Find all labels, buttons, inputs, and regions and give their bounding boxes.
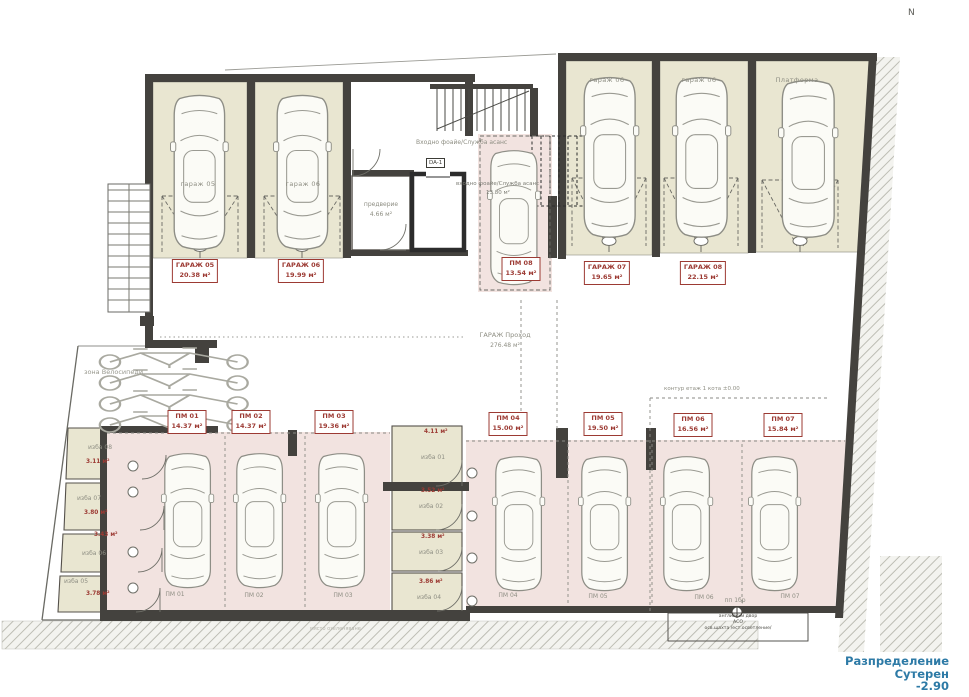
bike-zone-label: зона Велосипеди	[84, 368, 143, 376]
english-court-box: английски двор АСО осв.шахта /ест.осветл…	[669, 614, 807, 632]
area-tag-пм-04: ПМ 0415.00 м²	[489, 412, 528, 436]
drawing-title-line3: -2.90	[789, 680, 949, 693]
area-tag-пм-07: ПМ 0715.84 м²	[764, 413, 803, 437]
contour-note: контур етаж 1 кота ±0.00	[664, 386, 740, 392]
tag-title: ПМ 01	[172, 412, 203, 422]
tag-area: 19.36 м²	[319, 422, 350, 432]
cellar-name-изба-04: изба 04	[417, 594, 441, 601]
compass-north: N	[908, 8, 915, 18]
floor-label-пм-01: ПМ 01	[165, 591, 184, 598]
elevator-tag: DA-1	[426, 158, 445, 168]
area-tag-гараж-07: ГАРАЖ 0719.65 м²	[584, 261, 630, 285]
tag-title: ПМ 05	[588, 414, 619, 424]
tag-area: 22.15 м²	[684, 273, 722, 283]
tag-title: ПМ 02	[236, 412, 267, 422]
tag-title: ГАРАЖ 06	[282, 261, 320, 271]
vestibule-label: предверие	[364, 201, 398, 208]
cellar-area-изба-07: 3.80 м²	[84, 510, 108, 516]
tag-area: 14.37 м²	[236, 422, 267, 432]
floor-label-пм-03: ПМ 03	[333, 592, 352, 599]
tag-title: ПМ 07	[768, 415, 799, 425]
cellar-name-изба-01: изба 01	[421, 454, 445, 461]
floor-label-пм-06: ПМ 06	[694, 594, 713, 601]
area-tag-пм-05: ПМ 0519.50 м²	[584, 412, 623, 436]
floor-label-пм-02: ПМ 02	[244, 592, 263, 599]
tag-area: 16.56 м²	[678, 425, 709, 435]
passage-area: 276.48 м²	[490, 342, 520, 349]
court-line-3: осв.шахта /ест.осветление/	[669, 626, 807, 632]
floor-label-пм-04: ПМ 04	[498, 592, 517, 599]
cellar-area-изба-01: 4.11 м²	[424, 429, 448, 435]
tag-area: 20.38 м²	[176, 271, 214, 281]
floor-label-пм-05: ПМ 05	[588, 593, 607, 600]
tag-area: 13.54 м²	[506, 269, 537, 279]
cellar-area-изба-02: 3.52 м²	[421, 488, 445, 494]
cellar-name-изба-02: изба 02	[419, 503, 443, 510]
area-tag-гараж-08: ГАРАЖ 0822.15 м²	[680, 261, 726, 285]
room-label-гараж-06: гараж 06	[590, 76, 625, 84]
entry-foyer-mid-label: входно фоайе/Служба асанс	[456, 181, 539, 187]
drawing-title-line1: Разпределение	[789, 655, 949, 668]
tag-title: ПМ 04	[493, 414, 524, 424]
area-tag-пм-02: ПМ 0214.37 м²	[232, 410, 271, 434]
passage-label: ГАРАЖ Проход	[479, 331, 530, 339]
room-label-гараж-06: гараж 06	[682, 76, 717, 84]
green-note: място озеленяване	[310, 626, 361, 632]
tag-area: 19.65 м²	[588, 273, 626, 283]
cellar-area-изба-03: 3.38 м²	[421, 534, 445, 540]
cellar-name-изба-06: изба 06	[82, 550, 106, 557]
cellar-name-изба-03: изба 03	[419, 549, 443, 556]
area-tag-пм-06: ПМ 0616.56 м²	[674, 413, 713, 437]
room-label-гараж-05: гараж 05	[181, 180, 216, 188]
area-tag-гараж-06: ГАРАЖ 0619.99 м²	[278, 259, 324, 283]
drawing-title: Разпределение Сутерен -2.90	[789, 655, 949, 693]
room-label-гараж-06: гараж 06	[286, 180, 321, 188]
tag-area: 15.84 м²	[768, 425, 799, 435]
floor-plan-drawing	[0, 0, 969, 697]
floor-label-пп-1бр: пп 1бр	[724, 597, 745, 604]
cellar-name-изба-08: изба 08	[88, 444, 112, 451]
cellar-name-изба-05: изба 05	[64, 578, 88, 585]
tag-title: ПМ 08	[506, 259, 537, 269]
tag-title: ГАРАЖ 05	[176, 261, 214, 271]
cellar-area-изба-06: 3.43 м²	[94, 532, 118, 538]
tag-area: 15.00 м²	[493, 424, 524, 434]
area-tag-пм-01: ПМ 0114.37 м²	[168, 410, 207, 434]
cellar-area-изба-08: 3.11 м²	[86, 459, 110, 465]
area-tag-пм-03: ПМ 0319.36 м²	[315, 410, 354, 434]
entry-foyer-mid-area: 13.80 м²	[486, 190, 510, 196]
cellar-area-изба-05: 3.78 м²	[86, 591, 110, 597]
tag-area: 19.50 м²	[588, 424, 619, 434]
floor-plan-canvas: Входно фоайе/Служба асанс входно фоайе/С…	[0, 0, 969, 697]
room-label-платформа: Платформа	[776, 76, 819, 84]
area-tag-гараж-05: ГАРАЖ 0520.38 м²	[172, 259, 218, 283]
area-tag-пм-08: ПМ 0813.54 м²	[502, 257, 541, 281]
entry-foyer-label: Входно фоайе/Служба асанс	[416, 139, 507, 146]
tag-title: ПМ 06	[678, 415, 709, 425]
tag-title: ПМ 03	[319, 412, 350, 422]
cellar-area-изба-04: 3.86 м²	[419, 579, 443, 585]
floor-label-пм-07: ПМ 07	[780, 593, 799, 600]
cellar-name-изба-07: изба 07	[77, 495, 101, 502]
vestibule-area: 4.66 м²	[370, 211, 392, 218]
tag-area: 14.37 м²	[172, 422, 203, 432]
tag-title: ГАРАЖ 08	[684, 263, 722, 273]
tag-area: 19.99 м²	[282, 271, 320, 281]
tag-title: ГАРАЖ 07	[588, 263, 626, 273]
